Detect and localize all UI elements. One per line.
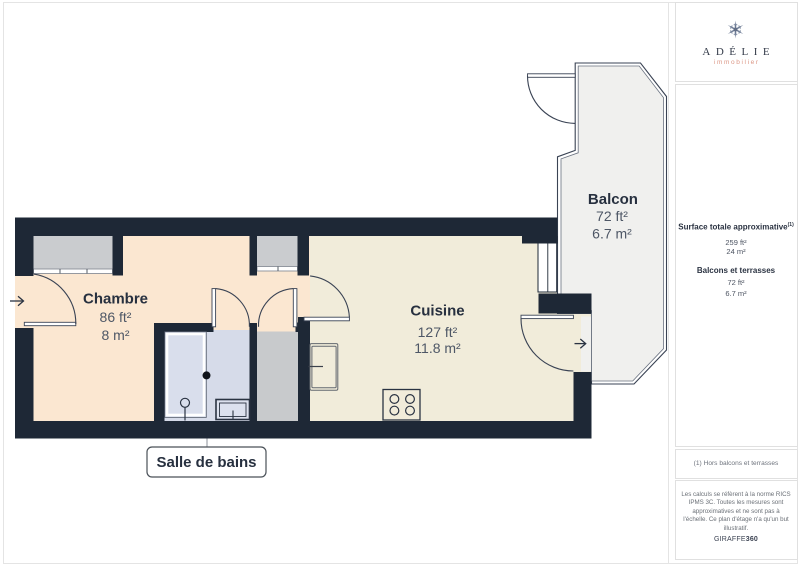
svg-text:Salle de bains: Salle de bains xyxy=(156,454,256,471)
svg-text:Cuisine: Cuisine xyxy=(410,303,464,320)
svg-text:6.7 m²: 6.7 m² xyxy=(592,226,632,242)
svg-text:Chambre: Chambre xyxy=(83,291,148,308)
svg-text:Balcon: Balcon xyxy=(588,191,638,208)
svg-text:8 m²: 8 m² xyxy=(102,327,130,343)
svg-text:86 ft²: 86 ft² xyxy=(100,309,132,325)
svg-text:72 ft²: 72 ft² xyxy=(596,208,628,224)
svg-text:11.8 m²: 11.8 m² xyxy=(414,340,461,356)
svg-text:127 ft²: 127 ft² xyxy=(418,324,458,340)
